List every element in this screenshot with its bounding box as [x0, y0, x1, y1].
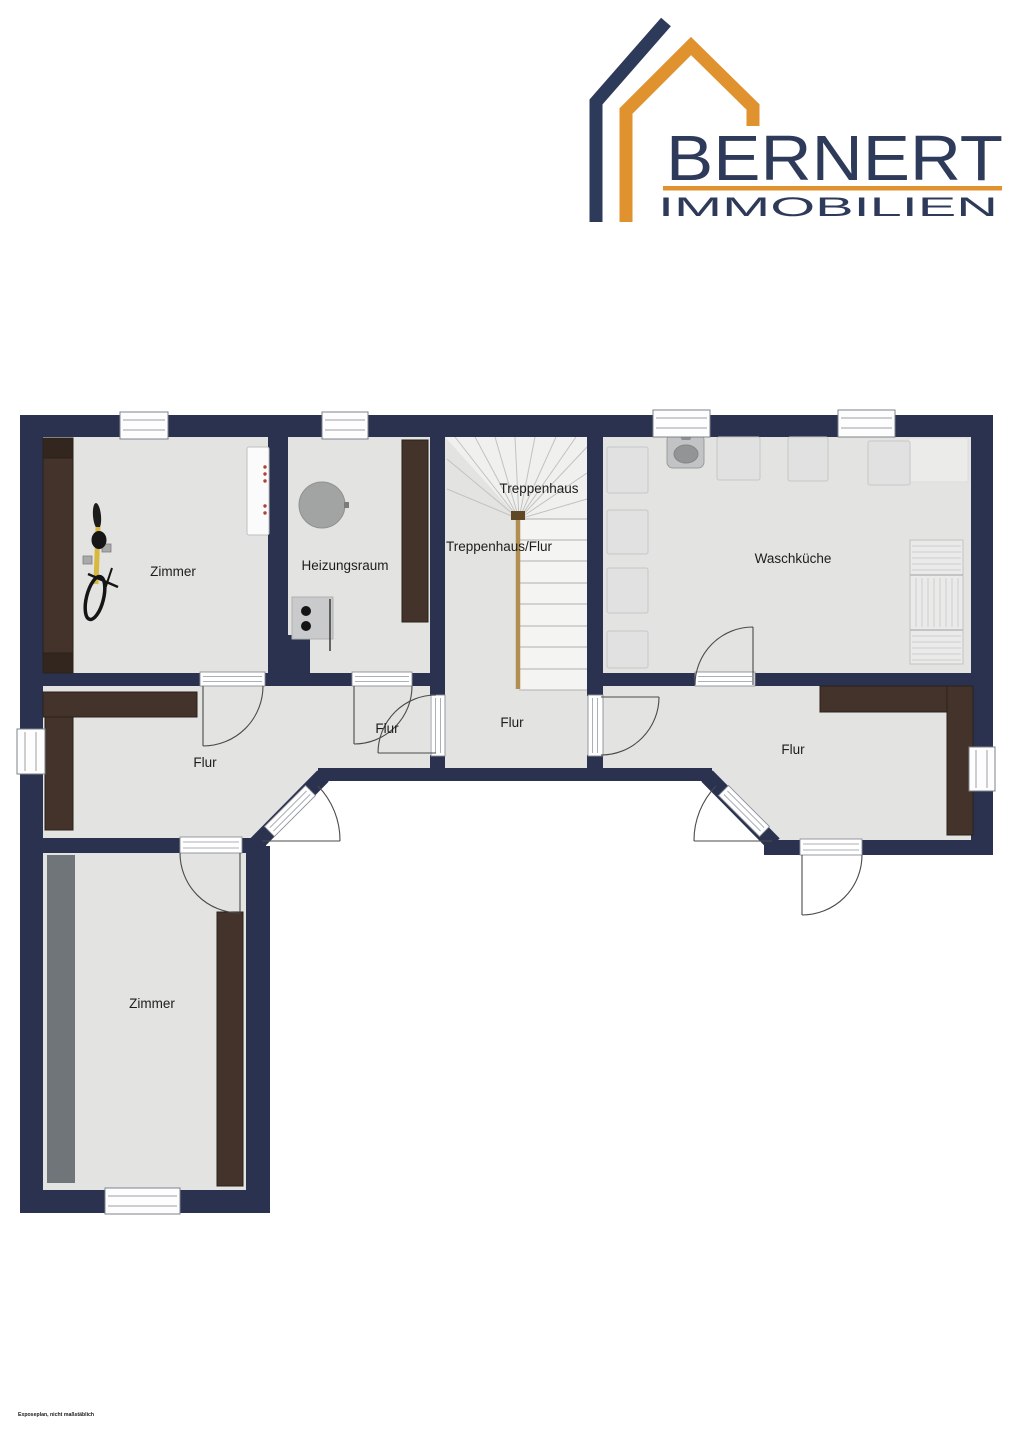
sink [667, 434, 704, 468]
wall-stub-heizung [288, 635, 310, 675]
room-label-flur-center: Flur [500, 715, 524, 730]
wardrobe-flur-left-top [43, 692, 197, 717]
wall-center-bottom [318, 768, 712, 781]
door-threshold [431, 695, 445, 756]
door-threshold [352, 672, 412, 686]
window [120, 412, 168, 439]
brand-underline [663, 186, 1002, 191]
brand-wordmark: BERNERT [666, 122, 1003, 194]
room-label-flur-left: Flur [193, 755, 217, 770]
disclaimer-text: Exposeplan, nicht maßstäblich [18, 1412, 94, 1418]
wall-zimmer-heizung [268, 437, 288, 673]
door-threshold [800, 839, 862, 855]
room-label-flur-small: Flur [375, 721, 399, 736]
wall-wasch-bottom [603, 673, 695, 686]
room-label-heizungsraum: Heizungsraum [301, 558, 388, 573]
wardrobe-zimmer-bottom [217, 912, 243, 1186]
window [969, 747, 995, 791]
wall-treppe-wasch [587, 437, 603, 673]
brand-logo: BERNERT IMMOBILIEN [596, 22, 1003, 222]
wall-heizung-treppe [430, 437, 445, 673]
door-threshold [695, 672, 755, 686]
window [653, 410, 710, 437]
door-threshold [588, 695, 603, 756]
radiator [247, 447, 269, 535]
gray-panel-zimmer-bottom [47, 855, 75, 1183]
room-label-zimmer-bottom: Zimmer [129, 996, 175, 1011]
floor-plan-image: BERNERT IMMOBILIEN [0, 0, 1018, 1440]
wardrobe-zimmer-top [43, 438, 73, 673]
wall-leftflur-bottom [20, 838, 180, 853]
wardrobe-flur-left-side [45, 717, 73, 830]
brand-subtitle: IMMOBILIEN [658, 192, 998, 222]
room-label-waschkueche: Waschküche [755, 551, 832, 566]
drying-rack [910, 540, 963, 664]
wardrobe-heizungsraum [402, 440, 428, 622]
window [838, 410, 895, 437]
wall-outer-left [20, 415, 43, 1213]
room-label-flur-right: Flur [781, 742, 805, 757]
room-label-treppenhaus: Treppenhaus [499, 481, 578, 496]
wall-left-wing-right [246, 846, 270, 1213]
room-label-treppenhaus-flur: Treppenhaus/Flur [446, 539, 553, 554]
door-threshold [200, 672, 265, 686]
stair-railing-newel [511, 511, 525, 520]
room-label-zimmer-top: Zimmer [150, 564, 196, 579]
window [105, 1188, 180, 1214]
floor-plan-page: BERNERT IMMOBILIEN [0, 0, 1018, 1440]
wall-topband-bottom [20, 673, 200, 686]
wardrobe-flur-right-top [820, 686, 948, 712]
door-threshold [180, 837, 242, 853]
door-swing [802, 855, 862, 915]
window [17, 729, 45, 774]
window [322, 412, 368, 439]
